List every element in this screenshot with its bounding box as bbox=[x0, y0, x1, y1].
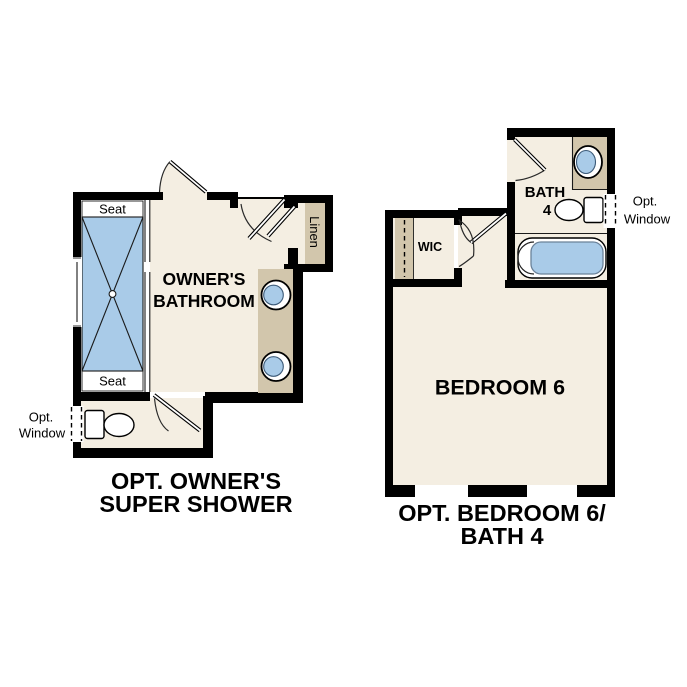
left-caption-line2: SUPER SHOWER bbox=[99, 491, 292, 517]
toilet-tank bbox=[85, 411, 104, 439]
shower-drain bbox=[109, 291, 116, 298]
super-shower: Seat Seat bbox=[82, 200, 150, 392]
bath4-door-opening-floor bbox=[507, 140, 515, 182]
bath4-opt-window-label-line2: Window bbox=[624, 212, 671, 227]
owners-opt-window: Opt. Window bbox=[19, 406, 84, 442]
owners-bathroom-label-line2: BATHROOM bbox=[153, 291, 255, 311]
seat-top-label: Seat bbox=[99, 202, 126, 217]
sink-1-basin bbox=[264, 285, 284, 305]
tub-basin bbox=[531, 242, 603, 274]
opt-window-label-line2: Window bbox=[19, 426, 66, 441]
bedroom-window-2 bbox=[527, 487, 577, 495]
linen-label: Linen bbox=[307, 216, 322, 248]
bath4-sink-basin bbox=[577, 151, 596, 174]
toilet-bowl bbox=[104, 414, 134, 437]
seat-bottom-label: Seat bbox=[99, 374, 126, 389]
right-caption-line2: BATH 4 bbox=[460, 523, 543, 549]
vestibule-floor bbox=[458, 216, 507, 287]
shower-window bbox=[72, 257, 82, 327]
opt-window-label-line1: Opt. bbox=[29, 410, 54, 425]
floor-plan-canvas: Seat Seat bbox=[0, 0, 687, 687]
bath4-label-line2: 4 bbox=[543, 202, 552, 219]
owners-bathroom-label-line1: OWNER'S bbox=[163, 269, 246, 289]
floor-plan-page: Seat Seat bbox=[0, 0, 687, 687]
owners-vanity bbox=[258, 269, 293, 393]
bath4-label-line1: BATH bbox=[525, 184, 566, 201]
bath4-opt-window-label-line1: Opt. bbox=[633, 194, 658, 209]
bath4-toilet-tank bbox=[584, 198, 603, 223]
bath4-tub bbox=[515, 234, 607, 279]
bedroom6-label: BEDROOM 6 bbox=[435, 376, 565, 400]
bedroom-window-1 bbox=[415, 487, 468, 495]
wic-label: WIC bbox=[418, 240, 442, 254]
top-door-opening-floor bbox=[163, 192, 207, 200]
bath4-vanity bbox=[572, 137, 607, 190]
sink-2-basin bbox=[264, 357, 284, 377]
bath4-toilet-bowl bbox=[555, 200, 583, 221]
